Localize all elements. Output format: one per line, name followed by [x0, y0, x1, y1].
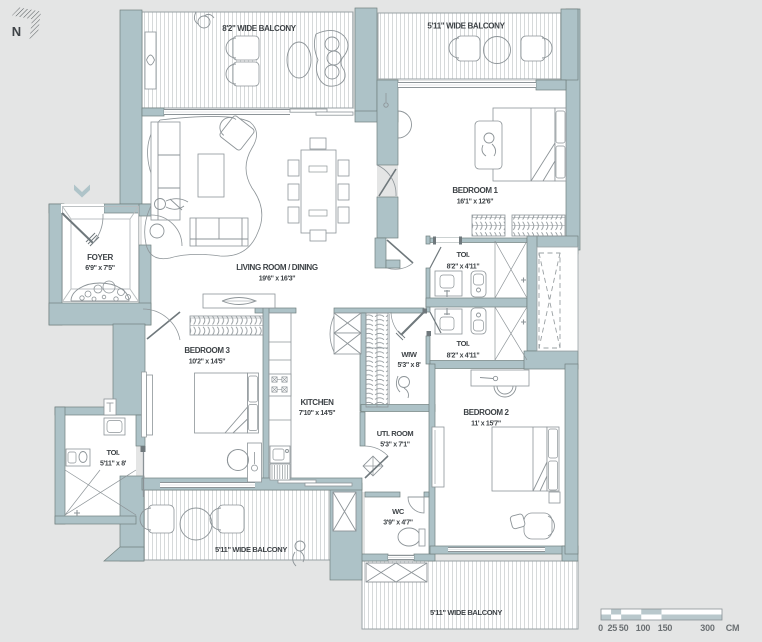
svg-text:BEDROOM 2: BEDROOM 2 [463, 408, 509, 417]
svg-text:N: N [12, 24, 21, 39]
svg-text:5'11" x 8': 5'11" x 8' [100, 461, 127, 468]
svg-text:5'3" x 8': 5'3" x 8' [398, 362, 422, 369]
svg-text:8'2" WIDE BALCONY: 8'2" WIDE BALCONY [222, 24, 297, 33]
svg-text:16'1" x 12'6": 16'1" x 12'6" [457, 199, 494, 206]
svg-text:6'9" x 7'5": 6'9" x 7'5" [85, 265, 115, 272]
svg-text:WC: WC [392, 507, 405, 516]
svg-text:TOI.: TOI. [456, 250, 469, 259]
svg-text:LIVING ROOM / DINING: LIVING ROOM / DINING [236, 263, 318, 272]
svg-text:CM: CM [726, 623, 740, 633]
svg-text:300: 300 [700, 623, 715, 633]
svg-text:150: 150 [658, 623, 673, 633]
svg-text:WIW: WIW [401, 350, 417, 359]
svg-text:BEDROOM 1: BEDROOM 1 [452, 186, 498, 195]
svg-text:5'11" WIDE BALCONY: 5'11" WIDE BALCONY [430, 608, 502, 617]
svg-text:50: 50 [619, 623, 629, 633]
svg-text:5'3" x 7'1": 5'3" x 7'1" [380, 442, 410, 449]
svg-text:10'2" x 14'5": 10'2" x 14'5" [189, 359, 226, 366]
svg-text:BEDROOM 3: BEDROOM 3 [184, 346, 230, 355]
svg-text:5'11" WIDE BALCONY: 5'11" WIDE BALCONY [215, 545, 287, 554]
svg-text:FOYER: FOYER [87, 253, 113, 262]
svg-text:19'6" x 16'3": 19'6" x 16'3" [259, 276, 296, 283]
svg-text:5'11" WIDE BALCONY: 5'11" WIDE BALCONY [427, 22, 505, 31]
svg-text:TOI.: TOI. [106, 448, 119, 457]
svg-text:100: 100 [636, 623, 651, 633]
svg-text:3'9" x 4'7": 3'9" x 4'7" [383, 520, 413, 527]
svg-text:8'2" x 4'11": 8'2" x 4'11" [447, 264, 480, 271]
svg-text:11' x 15'7": 11' x 15'7" [471, 421, 501, 428]
svg-text:8'2" x 4'11": 8'2" x 4'11" [447, 353, 480, 360]
svg-text:UTI. ROOM: UTI. ROOM [377, 429, 414, 438]
svg-text:25: 25 [607, 623, 617, 633]
svg-text:0: 0 [598, 623, 603, 633]
svg-text:TOI.: TOI. [456, 339, 469, 348]
svg-text:KITCHEN: KITCHEN [300, 398, 334, 407]
svg-text:7'10" x 14'5": 7'10" x 14'5" [299, 410, 336, 417]
